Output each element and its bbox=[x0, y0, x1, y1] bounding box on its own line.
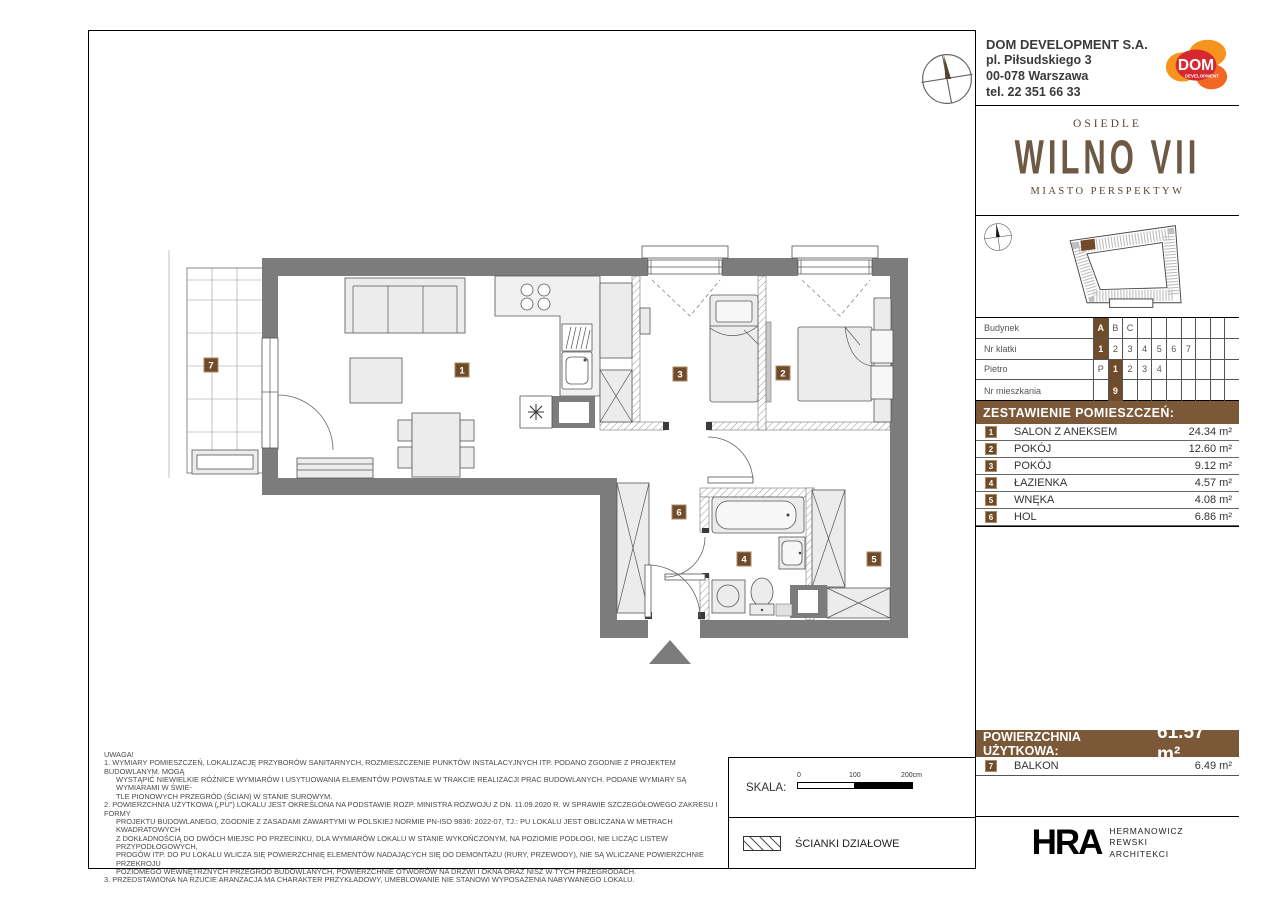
room2 bbox=[766, 298, 893, 422]
room3-shelf bbox=[640, 308, 650, 334]
room-number-badge: 7 bbox=[985, 760, 997, 772]
dining-set bbox=[398, 413, 474, 477]
wall-panel bbox=[766, 322, 771, 402]
note-line: 1. WYMIARY POMIESZCZEŃ, LOKALIZACJĘ PRZY… bbox=[104, 759, 726, 776]
room-schedule-title: ZESTAWIENIE POMIESZCZEŃ: bbox=[976, 401, 1239, 424]
architect-line: REWSKI bbox=[1109, 837, 1183, 848]
spacer bbox=[976, 776, 1239, 817]
partition-legend-label: ŚCIANKI DZIAŁOWE bbox=[795, 838, 900, 850]
wneka-wardrobe-vertical bbox=[812, 490, 845, 587]
room-number-badge: 5 bbox=[985, 494, 997, 506]
room-badge-5: 5 bbox=[867, 552, 881, 566]
balcony-row: 7 BALKON 6.49 m² bbox=[976, 757, 1239, 775]
scale-tick: 0 bbox=[797, 772, 801, 779]
entrance-arrow-icon bbox=[649, 640, 691, 664]
kitchen-wardrobe bbox=[600, 370, 632, 422]
floorplan-sheet: { "header": { "company": { "name": "DOM … bbox=[0, 0, 1273, 900]
highlighted-unit bbox=[1080, 239, 1095, 251]
hall-wardrobe bbox=[617, 483, 649, 613]
bath-shelf bbox=[776, 604, 792, 616]
svg-text:2: 2 bbox=[780, 369, 785, 380]
spacer bbox=[976, 527, 1239, 730]
room-badge-1: 1 bbox=[455, 363, 469, 377]
note-line: 2. POWIERZCHNIA UŻYTKOWA („PU") LOKALU J… bbox=[104, 801, 726, 818]
table-row: Nr klatki 1 2 3 4 5 6 7 bbox=[976, 339, 1239, 360]
room-number-badge: 1 bbox=[985, 426, 997, 438]
company-name: DOM DEVELOPMENT S.A. bbox=[986, 37, 1148, 53]
double-bed bbox=[798, 327, 872, 401]
table-row: Nr mieszkania 9 bbox=[976, 380, 1239, 401]
vent-point-icon bbox=[520, 396, 552, 428]
table-row: Budynek A B C bbox=[976, 318, 1239, 339]
room-badge-3: 3 bbox=[673, 367, 687, 381]
room-number-badge: 6 bbox=[985, 511, 997, 523]
svg-text:DOM: DOM bbox=[1178, 57, 1214, 74]
room-schedule: ZESTAWIENIE POMIESZCZEŃ: 1 SALON Z ANEKS… bbox=[976, 401, 1239, 527]
room-row: 5 WNĘKA 4.08 m² bbox=[976, 492, 1239, 509]
room-badge-2: 2 bbox=[776, 366, 790, 380]
room-row: 2 POKÓJ 12.60 m² bbox=[976, 441, 1239, 458]
kitchen-tall-cabinet bbox=[600, 283, 632, 358]
usable-area-bar: POWIERZCHNIA UŻYTKOWA: 61.57 m² bbox=[976, 730, 1239, 757]
balcony-row-section: 7 BALKON 6.49 m² bbox=[976, 757, 1239, 776]
estate-tagline: MIASTO PERSPEKTYW bbox=[976, 186, 1239, 197]
kitchen bbox=[495, 276, 650, 428]
room-number-badge: 3 bbox=[985, 460, 997, 472]
room-row: 4 ŁAZIENKA 4.57 m² bbox=[976, 475, 1239, 492]
estate-name: WILNO VII bbox=[1015, 130, 1201, 186]
nightstand bbox=[871, 330, 893, 363]
sofa bbox=[345, 278, 465, 333]
door-room3 bbox=[663, 422, 753, 483]
room-badge-4: 4 bbox=[737, 552, 751, 566]
single-bed bbox=[710, 295, 758, 402]
scale-tick: 200cm bbox=[901, 772, 922, 779]
room-row: 6 HOL 6.86 m² bbox=[976, 509, 1239, 526]
scale-label: SKALA: bbox=[746, 782, 786, 794]
balcony-door bbox=[262, 338, 333, 450]
room-row: 1 SALON Z ANEKSEM 24.34 m² bbox=[976, 424, 1239, 441]
room-row: 3 POKÓJ 9.12 m² bbox=[976, 458, 1239, 475]
note-line: Z DOKŁADNOŚCIĄ DO DWÓCH MIEJSC PO PRZECI… bbox=[104, 835, 726, 852]
dom-development-logo-icon: DOM DEVELOPMENT bbox=[1161, 37, 1231, 95]
company-address2: 00-078 Warszawa bbox=[986, 69, 1148, 85]
window-room2 bbox=[792, 246, 878, 316]
svg-text:3: 3 bbox=[677, 370, 682, 381]
legend-box: ŚCIANKI DZIAŁOWE bbox=[728, 817, 975, 869]
legal-notes: UWAGA! 1. WYMIARY POMIESZCZEŃ, LOKALIZAC… bbox=[104, 751, 726, 885]
svg-text:DEVELOPMENT: DEVELOPMENT bbox=[1185, 74, 1219, 79]
estate-branding: OSIEDLE WILNO VII MIASTO PERSPEKTYW bbox=[976, 106, 1239, 216]
wneka-wardrobe-horizontal bbox=[827, 588, 890, 618]
svg-text:7: 7 bbox=[208, 361, 213, 372]
usable-area-label: POWIERZCHNIA UŻYTKOWA: bbox=[983, 730, 1157, 758]
architect-line: HERMANOWICZ bbox=[1109, 826, 1183, 837]
washing-machine bbox=[712, 580, 745, 613]
estate-prefix: OSIEDLE bbox=[976, 118, 1239, 130]
room3 bbox=[710, 295, 758, 402]
scale-bar-black bbox=[855, 783, 912, 788]
company-phone: tel. 22 351 66 33 bbox=[986, 85, 1148, 101]
room-number-badge: 4 bbox=[985, 477, 997, 489]
scale-box: SKALA: 0 100 200cm bbox=[728, 757, 975, 817]
title-block: DOM DEVELOPMENT S.A. pl. Piłsudskiego 3 … bbox=[975, 30, 1239, 869]
architect-block: HRA HERMANOWICZ REWSKI ARCHITEKCI bbox=[976, 817, 1239, 869]
note-line: WYSTĄPIĆ NIEWIELKIE RÓŻNICE WYMIARÓW I U… bbox=[104, 776, 726, 793]
door-bathroom bbox=[665, 528, 709, 580]
partition-hatch-swatch-icon bbox=[743, 836, 781, 851]
svg-text:5: 5 bbox=[871, 555, 877, 566]
kitchen-sink bbox=[562, 352, 592, 389]
note-line: PROGÓW ITP. DO PU LOKALU WLICZA SIĘ POWI… bbox=[104, 851, 726, 868]
architect-line: ARCHITEKCI bbox=[1109, 849, 1183, 860]
north-compass-icon bbox=[918, 50, 976, 108]
nightstand bbox=[871, 366, 893, 399]
living-room bbox=[297, 278, 474, 478]
room-number-badge: 2 bbox=[985, 443, 997, 455]
bathtub bbox=[712, 497, 804, 533]
company-address1: pl. Piłsudskiego 3 bbox=[986, 53, 1148, 69]
svg-text:4: 4 bbox=[741, 555, 747, 566]
floor-plan: 1 2 3 4 5 6 7 bbox=[150, 238, 940, 680]
site-plan-section bbox=[976, 216, 1239, 318]
table-row: Pietro P 1 2 3 4 bbox=[976, 360, 1239, 381]
coffee-table bbox=[350, 358, 402, 403]
note-line: 3. PRZEDSTAWIONA NA RZUCIE ARANŻACJA MA … bbox=[104, 876, 726, 884]
room-badge-6: 6 bbox=[672, 505, 686, 519]
svg-text:6: 6 bbox=[676, 508, 681, 519]
sideboard bbox=[297, 458, 373, 478]
company-info: DOM DEVELOPMENT S.A. pl. Piłsudskiego 3 … bbox=[976, 30, 1239, 106]
svg-text:1: 1 bbox=[459, 366, 465, 377]
scale-bar: 0 100 200cm bbox=[797, 772, 937, 789]
scale-bar-white bbox=[798, 783, 855, 788]
site-plan-map bbox=[1034, 220, 1204, 314]
room-badge-7: 7 bbox=[204, 358, 218, 372]
bathroom-sink bbox=[779, 537, 805, 569]
site-compass-icon bbox=[982, 221, 1014, 253]
scale-tick: 100 bbox=[849, 772, 861, 779]
hra-logo: HRA bbox=[1032, 823, 1102, 863]
note-line: PROJEKTU BUDOWLANEGO, ZGODNIE Z ZASADAMI… bbox=[104, 818, 726, 835]
toilet bbox=[750, 578, 774, 615]
building-table: Budynek A B C Nr klatki 1 2 3 4 5 6 7 bbox=[976, 318, 1239, 401]
shaft bbox=[790, 585, 827, 618]
